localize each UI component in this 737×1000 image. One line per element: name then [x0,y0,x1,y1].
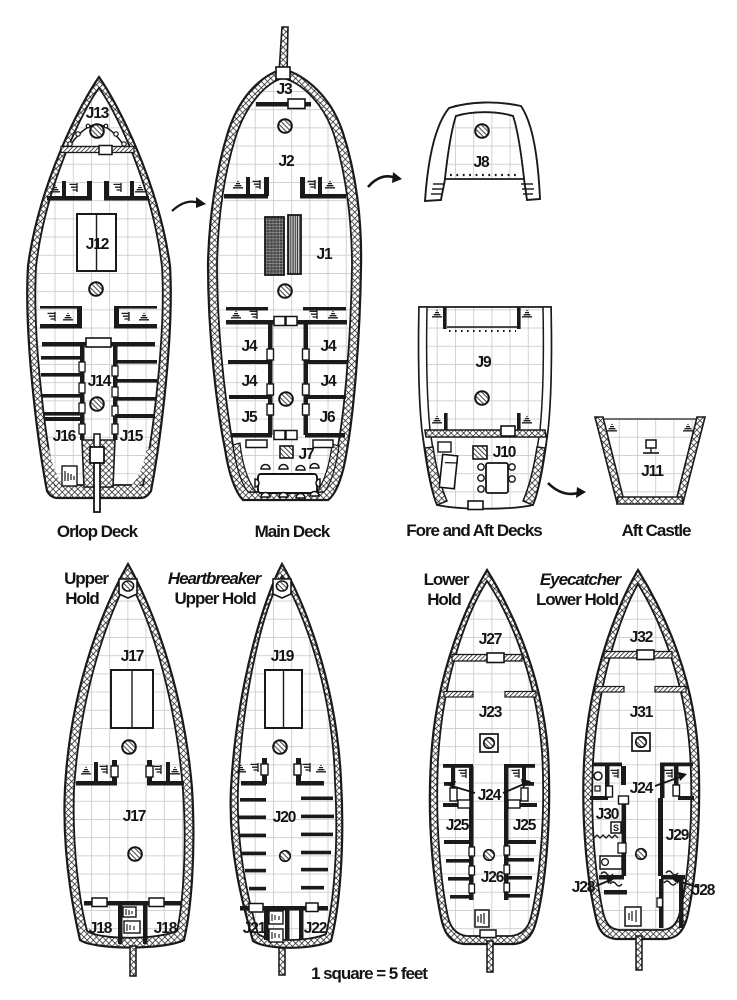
svg-text:J25: J25 [513,817,537,834]
svg-text:J2: J2 [278,153,294,170]
svg-text:J25: J25 [446,817,470,834]
svg-text:J3: J3 [276,81,293,98]
svg-text:J7: J7 [298,446,314,463]
svg-text:J17: J17 [121,648,144,665]
svg-text:J18: J18 [89,920,113,937]
svg-text:J4: J4 [320,338,337,355]
svg-text:J8: J8 [473,154,490,171]
svg-text:J18: J18 [154,920,178,937]
svg-text:Heartbreaker: Heartbreaker [168,569,263,588]
svg-text:J21: J21 [243,920,267,937]
svg-text:Hold: Hold [427,590,461,609]
svg-text:Upper Hold: Upper Hold [174,589,256,608]
svg-text:J30: J30 [596,806,619,823]
svg-text:J24: J24 [630,780,654,797]
svg-text:J12: J12 [86,236,109,253]
svg-text:S: S [613,823,619,833]
svg-text:J23: J23 [479,704,503,721]
svg-text:J14: J14 [88,373,112,390]
svg-text:Lower Hold: Lower Hold [536,590,619,609]
svg-text:Main Deck: Main Deck [255,522,331,541]
svg-text:J4: J4 [241,373,258,390]
svg-text:J20: J20 [273,809,296,826]
svg-text:Eyecatcher: Eyecatcher [540,570,623,589]
svg-text:J19: J19 [271,648,295,665]
svg-text:1 square = 5 feet: 1 square = 5 feet [311,964,428,983]
svg-text:J24: J24 [478,787,502,804]
svg-text:J28: J28 [572,879,596,896]
svg-text:J16: J16 [53,428,77,445]
svg-text:J15: J15 [120,428,144,445]
svg-text:Aft Castle: Aft Castle [622,521,691,540]
svg-text:J4: J4 [320,373,337,390]
svg-text:J17: J17 [123,808,146,825]
svg-text:J31: J31 [630,704,654,721]
svg-text:J13: J13 [86,105,110,122]
svg-text:Upper: Upper [64,569,109,588]
svg-text:J27: J27 [479,631,502,648]
svg-text:Lower: Lower [424,570,470,589]
svg-text:J9: J9 [475,354,492,371]
svg-text:J11: J11 [641,463,664,480]
svg-text:Fore and Aft Decks: Fore and Aft Decks [406,521,542,540]
svg-text:Orlop Deck: Orlop Deck [57,522,139,541]
svg-text:J6: J6 [319,409,336,426]
svg-text:J5: J5 [241,409,258,426]
svg-text:J4: J4 [241,338,258,355]
svg-text:J32: J32 [630,629,653,646]
svg-text:J10: J10 [493,444,516,461]
svg-text:Hold: Hold [65,589,99,608]
svg-text:J29: J29 [666,827,690,844]
svg-text:J22: J22 [304,920,327,937]
svg-text:J1: J1 [316,246,333,263]
svg-text:J28: J28 [692,882,716,899]
svg-text:J26: J26 [481,869,505,886]
